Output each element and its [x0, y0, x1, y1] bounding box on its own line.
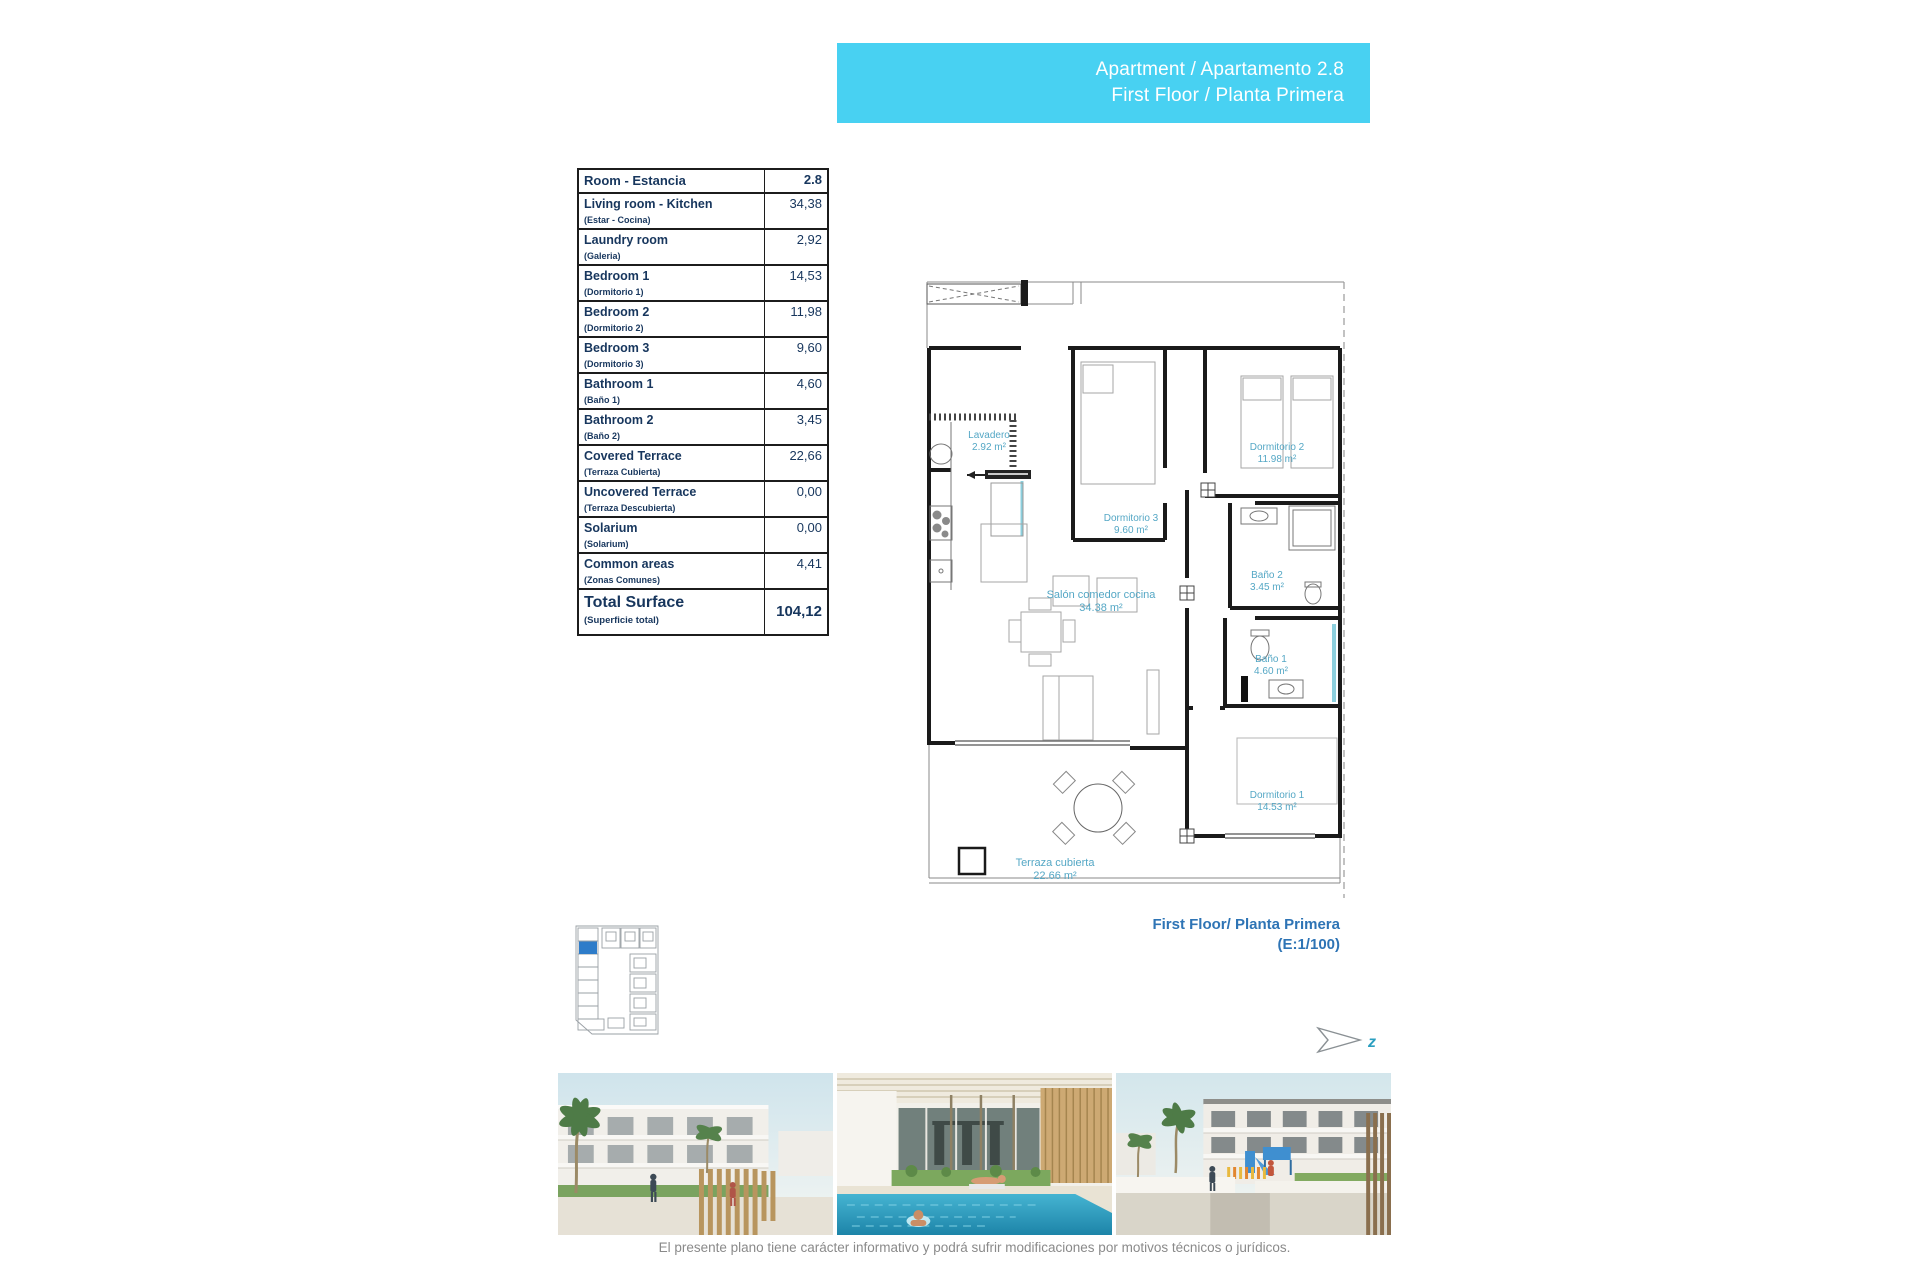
room-area-label: 2.92 m² [972, 442, 1007, 453]
room-area-label: 4.60 m² [1254, 666, 1289, 677]
table-row: Laundry room(Galeria) 2,92 [579, 228, 827, 264]
room-area: 34,38 [765, 194, 827, 228]
person-figure [1268, 1160, 1274, 1176]
room-name: Living room - Kitchen [584, 196, 764, 212]
plan-caption-title: First Floor/ Planta Primera [1040, 915, 1340, 935]
room-area: 3,45 [765, 410, 827, 444]
disclaimer-text: El presente plano tiene carácter informa… [558, 1240, 1391, 1255]
terrace-table [1053, 771, 1136, 844]
room-label: Dormitorio 2 [1250, 442, 1305, 453]
room-area: 0,00 [765, 482, 827, 516]
room-name: Bathroom 2 [584, 412, 764, 428]
room-name: Bedroom 3 [584, 340, 764, 356]
room-name: Solarium [584, 520, 764, 536]
table-row: Bedroom 3(Dormitorio 3) 9,60 [579, 336, 827, 372]
room-area-label: 9.60 m² [1114, 525, 1149, 536]
highlighted-unit [579, 942, 597, 955]
room-area: 0,00 [765, 518, 827, 552]
terrace-outline [929, 745, 1340, 883]
living-furniture [981, 524, 1159, 740]
north-label: z [1367, 1034, 1376, 1051]
room-name-es: (Terraza Descubierta) [584, 503, 764, 514]
table-row: Bedroom 1(Dormitorio 1) 14,53 [579, 264, 827, 300]
room-name: Uncovered Terrace [584, 484, 764, 500]
room-label: Dormitorio 1 [1250, 790, 1305, 801]
table-row: Covered Terrace(Terraza Cubierta) 22,66 [579, 444, 827, 480]
area-table: Room - Estancia 2.8 Living room - Kitche… [577, 168, 829, 636]
room-area-label: 3.45 m² [1250, 582, 1285, 593]
apartment-title: Apartment / Apartamento 2.8 [1096, 57, 1344, 83]
room-name: Covered Terrace [584, 448, 764, 464]
table-row: Living room - Kitchen(Estar - Cocina) 34… [579, 192, 827, 228]
room-area-label: 14.53 m² [1257, 802, 1297, 813]
table-header-room: Room - Estancia [579, 170, 765, 192]
wall-stub [1021, 280, 1028, 306]
room-name: Bedroom 1 [584, 268, 764, 284]
room-name-es: (Dormitorio 1) [584, 287, 764, 298]
photo-exterior-playground [1116, 1073, 1391, 1235]
room-name-es: (Galeria) [584, 251, 764, 262]
apartment-header: Apartment / Apartamento 2.8 First Floor … [837, 43, 1370, 123]
room-area: 4,41 [765, 554, 827, 588]
north-arrow-icon [1318, 1028, 1360, 1052]
room-area: 2,92 [765, 230, 827, 264]
photo-strip [558, 1073, 1391, 1235]
room-name-es: (Zonas Comunes) [584, 575, 764, 586]
room-name: Bedroom 2 [584, 304, 764, 320]
room-label: Salón comedor cocina [1047, 589, 1157, 601]
room-label: Terraza cubierta [1016, 857, 1096, 869]
stairwell-hatch [927, 282, 1344, 348]
table-row: Bedroom 2(Dormitorio 2) 11,98 [579, 300, 827, 336]
room-name-es: (Baño 2) [584, 431, 764, 442]
room-name: Common areas [584, 556, 764, 572]
room-label: Baño 2 [1251, 570, 1283, 581]
room-name-es: (Solarium) [584, 539, 764, 550]
plan-caption: First Floor/ Planta Primera (E:1/100) [1040, 915, 1340, 955]
bed-dormitorio3 [1081, 362, 1155, 484]
table-row: Bathroom 2(Baño 2) 3,45 [579, 408, 827, 444]
room-area-label: 11.98 m² [1258, 454, 1297, 465]
table-total-row: Total Surface(Superficie total) 104,12 [579, 588, 827, 634]
room-name-es: (Baño 1) [584, 395, 764, 406]
room-area: 4,60 [765, 374, 827, 408]
floor-plan: Lavadero 2.92 m² Dormitorio 3 9.60 m² Do… [925, 278, 1350, 923]
room-area: 9,60 [765, 338, 827, 372]
building-key-plan [566, 924, 666, 1039]
room-label: Lavadero [968, 430, 1010, 441]
room-name-es: (Dormitorio 3) [584, 359, 764, 370]
room-name-es: (Estar - Cocina) [584, 215, 764, 226]
room-area-label: 34.38 m² [1079, 602, 1123, 614]
room-area: 11,98 [765, 302, 827, 336]
room-label: Dormitorio 3 [1104, 513, 1159, 524]
room-area: 14,53 [765, 266, 827, 300]
floor-subtitle: First Floor / Planta Primera [1111, 83, 1344, 109]
table-row: Uncovered Terrace(Terraza Descubierta) 0… [579, 480, 827, 516]
photo-exterior-street [558, 1073, 833, 1235]
room-label: Baño 1 [1255, 654, 1287, 665]
total-value: 104,12 [765, 590, 827, 634]
room-name: Laundry room [584, 232, 764, 248]
room-name: Bathroom 1 [584, 376, 764, 392]
room-area: 22,66 [765, 446, 827, 480]
total-label: Total Surface [584, 592, 764, 612]
room-name-es: (Dormitorio 2) [584, 323, 764, 334]
table-header-unit: 2.8 [765, 170, 827, 192]
room-name-es: (Terraza Cubierta) [584, 467, 764, 478]
table-row: Common areas(Zonas Comunes) 4,41 [579, 552, 827, 588]
total-label-es: (Superficie total) [584, 615, 764, 626]
table-row: Bathroom 1(Baño 1) 4,60 [579, 372, 827, 408]
plan-caption-scale: (E:1/100) [1040, 935, 1340, 955]
photo-pool-gym [837, 1073, 1112, 1235]
north-arrow: z [1312, 1020, 1387, 1060]
table-row: Solarium(Solarium) 0,00 [579, 516, 827, 552]
table-header-row: Room - Estancia 2.8 [579, 170, 827, 192]
room-area-label: 22.66 m² [1033, 870, 1077, 882]
terrace-pillar [959, 848, 985, 874]
